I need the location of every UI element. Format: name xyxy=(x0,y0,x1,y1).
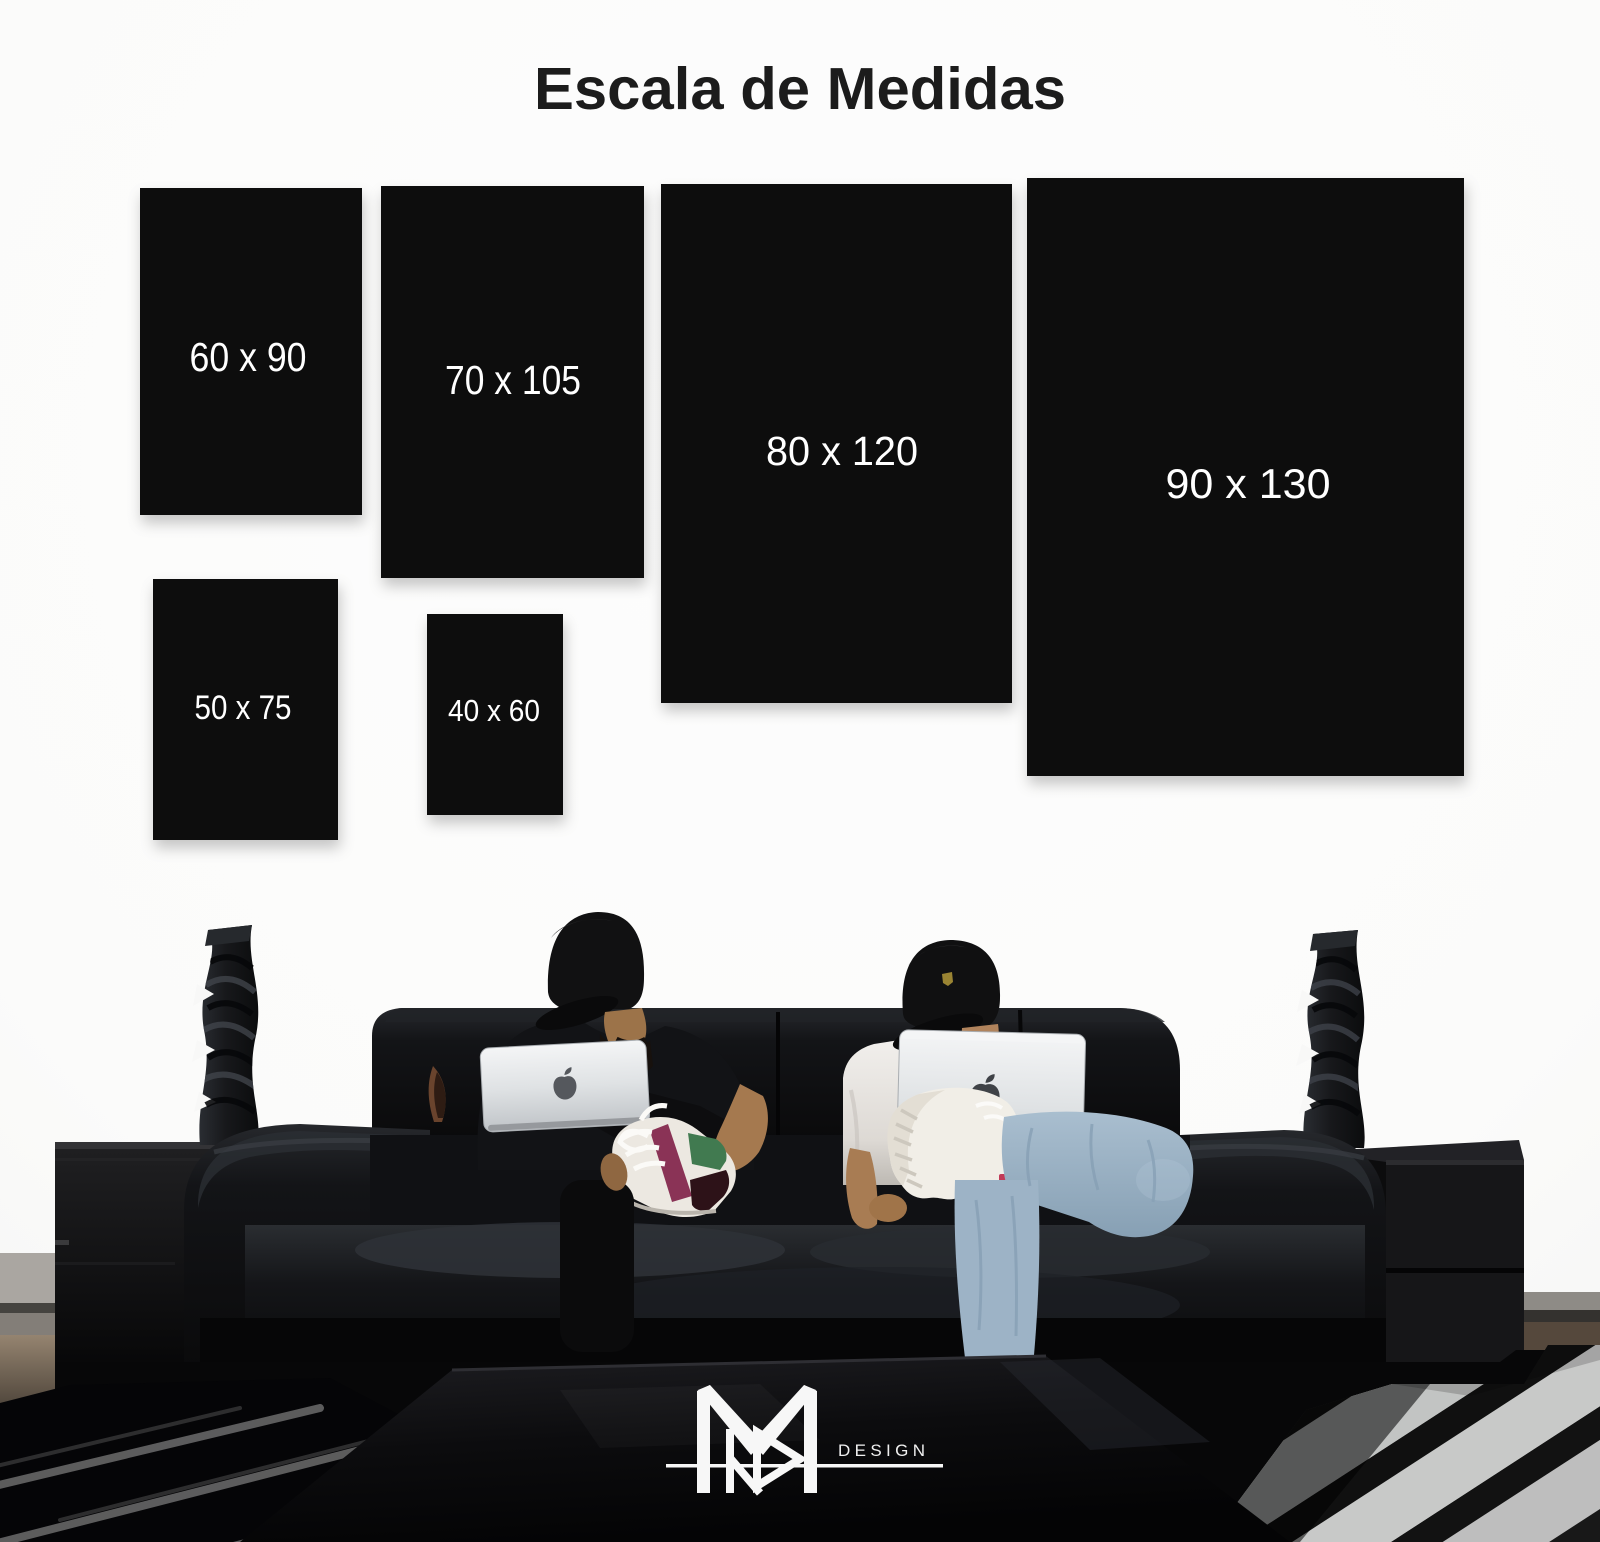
svg-text:50 x 75: 50 x 75 xyxy=(195,689,292,727)
svg-text:DESIGN: DESIGN xyxy=(838,1441,931,1460)
svg-text:40 x 60: 40 x 60 xyxy=(448,693,540,728)
svg-text:Escala de Medidas: Escala de Medidas xyxy=(534,56,1066,122)
svg-text:90 x 130: 90 x 130 xyxy=(1166,460,1331,507)
svg-text:70 x 105: 70 x 105 xyxy=(445,357,581,403)
svg-text:80 x 120: 80 x 120 xyxy=(766,428,918,474)
svg-text:60 x 90: 60 x 90 xyxy=(190,334,307,380)
